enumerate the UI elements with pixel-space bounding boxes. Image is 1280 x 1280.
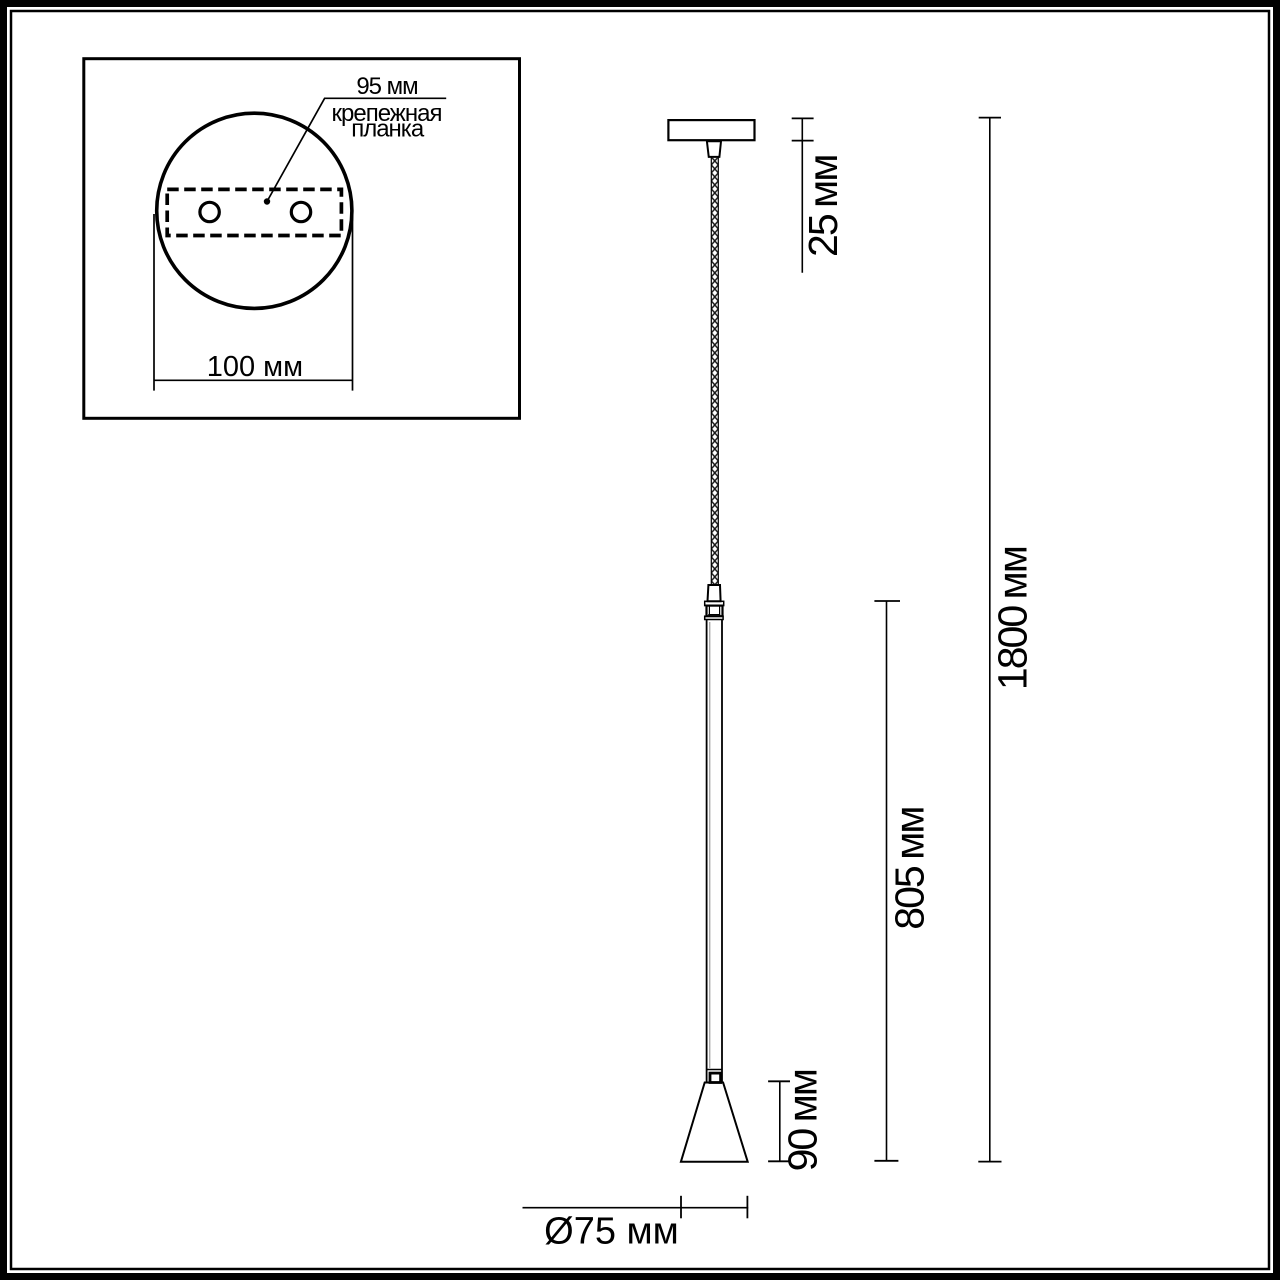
svg-text:25 мм: 25 мм — [800, 156, 846, 257]
svg-text:100 мм: 100 мм — [207, 351, 303, 383]
svg-text:планка: планка — [351, 116, 425, 143]
svg-text:90 мм: 90 мм — [779, 1070, 825, 1171]
svg-text:1800 мм: 1800 мм — [990, 547, 1036, 690]
svg-text:805 мм: 805 мм — [886, 808, 932, 930]
svg-text:95 мм: 95 мм — [356, 73, 417, 100]
svg-text:Ø75 мм: Ø75 мм — [544, 1211, 679, 1253]
